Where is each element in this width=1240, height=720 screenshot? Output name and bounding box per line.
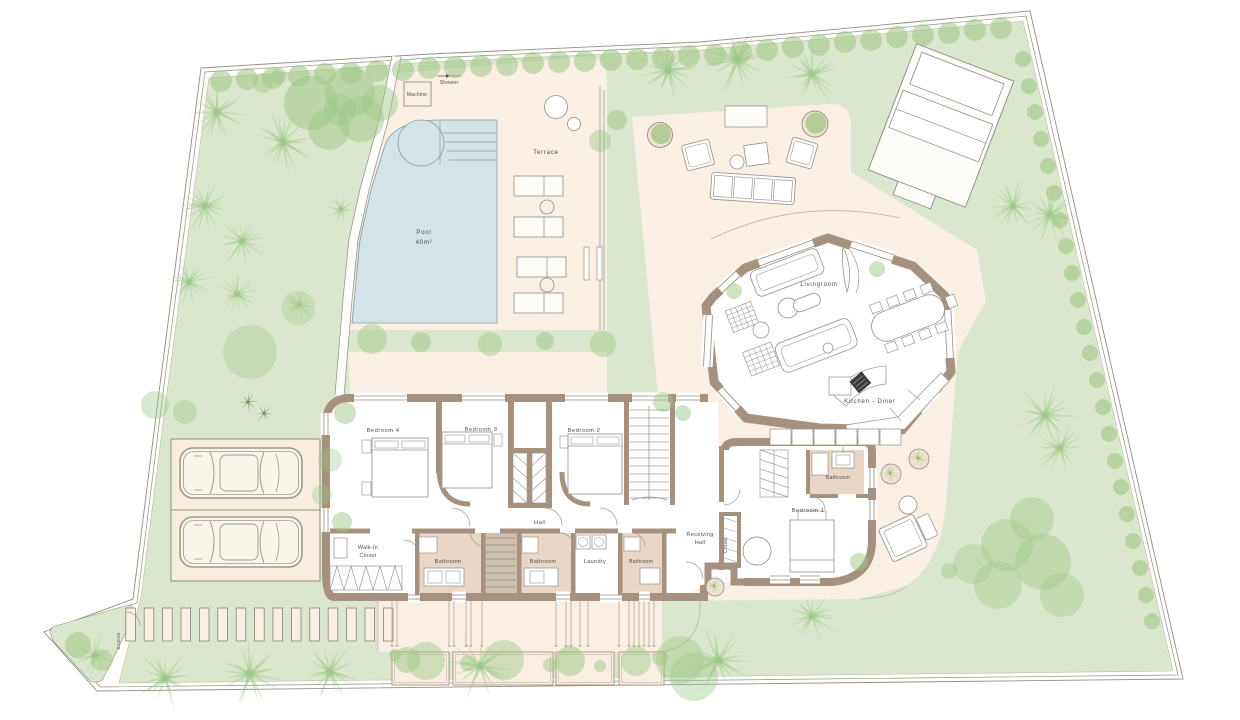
- svg-text:Shower: Shower: [440, 80, 459, 86]
- svg-text:40m²: 40m²: [416, 240, 433, 246]
- svg-text:Walk-In: Walk-In: [358, 545, 378, 551]
- svg-text:Laundry: Laundry: [584, 559, 606, 565]
- svg-text:Terrace: Terrace: [533, 150, 559, 156]
- svg-text:Bedroom 2: Bedroom 2: [568, 428, 601, 434]
- svg-text:Machine: Machine: [407, 92, 427, 98]
- svg-text:Bathroom: Bathroom: [629, 559, 653, 565]
- svg-text:Pool: Pool: [416, 230, 431, 236]
- svg-text:Bathroom: Bathroom: [435, 559, 462, 565]
- svg-text:Bathroom: Bathroom: [826, 475, 850, 481]
- svg-text:Bedroom 3: Bedroom 3: [465, 427, 498, 433]
- svg-text:Receiving: Receiving: [686, 532, 713, 538]
- svg-text:Bedroom 1: Bedroom 1: [792, 508, 825, 514]
- svg-text:Hall: Hall: [534, 520, 546, 526]
- svg-text:Kitchen - Diner: Kitchen - Diner: [844, 399, 896, 405]
- svg-text:Closet: Closet: [359, 553, 376, 559]
- svg-text:Hall: Hall: [695, 540, 706, 546]
- svg-text:Bathroom: Bathroom: [530, 559, 557, 565]
- svg-text:Livingroom: Livingroom: [800, 282, 837, 288]
- svg-text:BUZON: BUZON: [116, 632, 121, 649]
- svg-text:Bedroom 4: Bedroom 4: [367, 428, 400, 434]
